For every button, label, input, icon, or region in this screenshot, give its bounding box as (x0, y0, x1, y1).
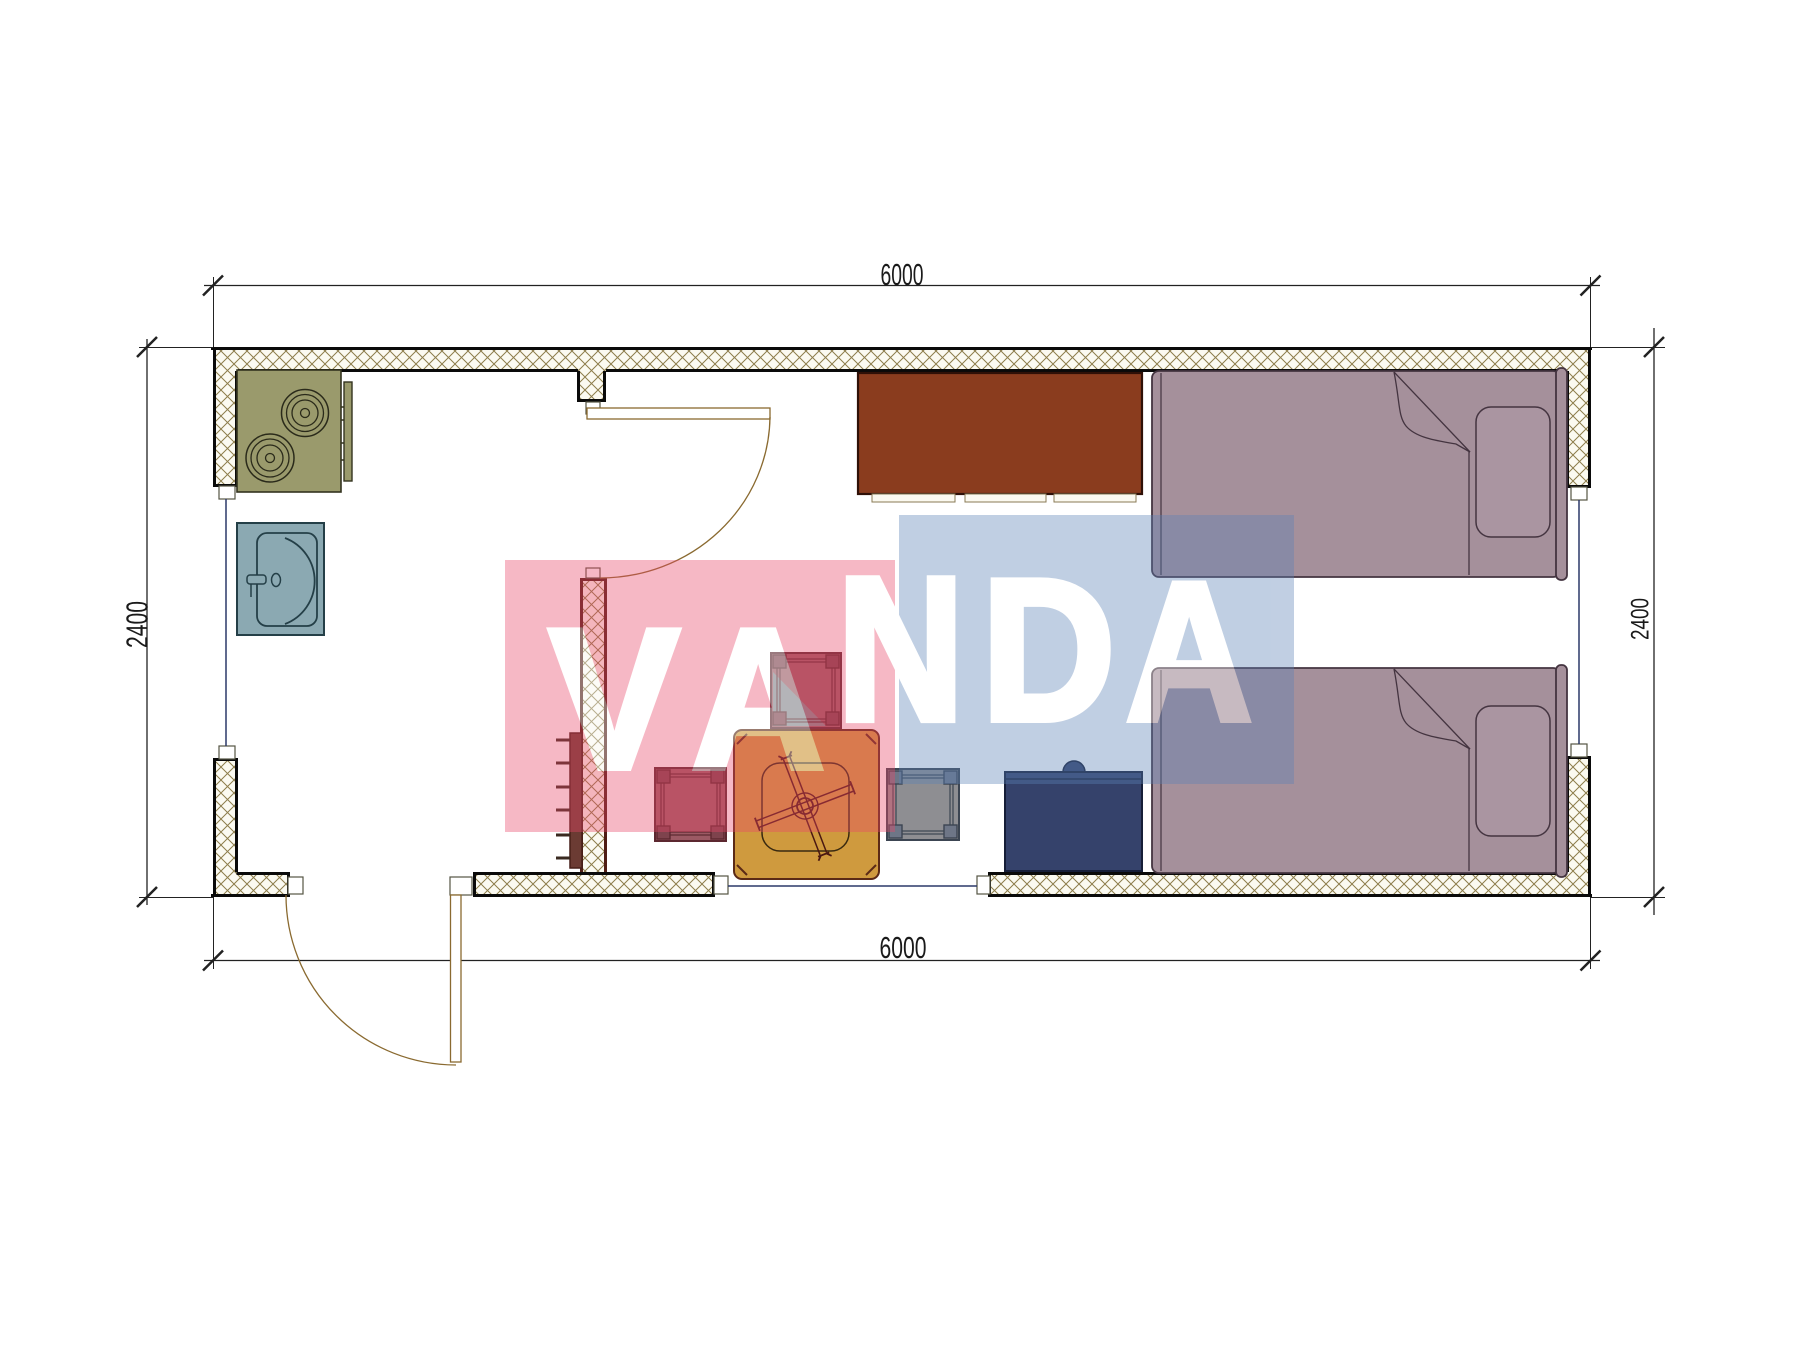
svg-text:A: A (692, 588, 824, 810)
svg-text:A: A (1126, 543, 1252, 762)
svg-text:6000: 6000 (880, 930, 927, 965)
svg-text:D: D (982, 537, 1116, 762)
svg-text:2400: 2400 (120, 601, 155, 648)
svg-text:2400: 2400 (1626, 598, 1654, 640)
svg-text:N: N (837, 535, 964, 763)
svg-text:6000: 6000 (881, 259, 924, 292)
svg-text:V: V (550, 587, 679, 810)
